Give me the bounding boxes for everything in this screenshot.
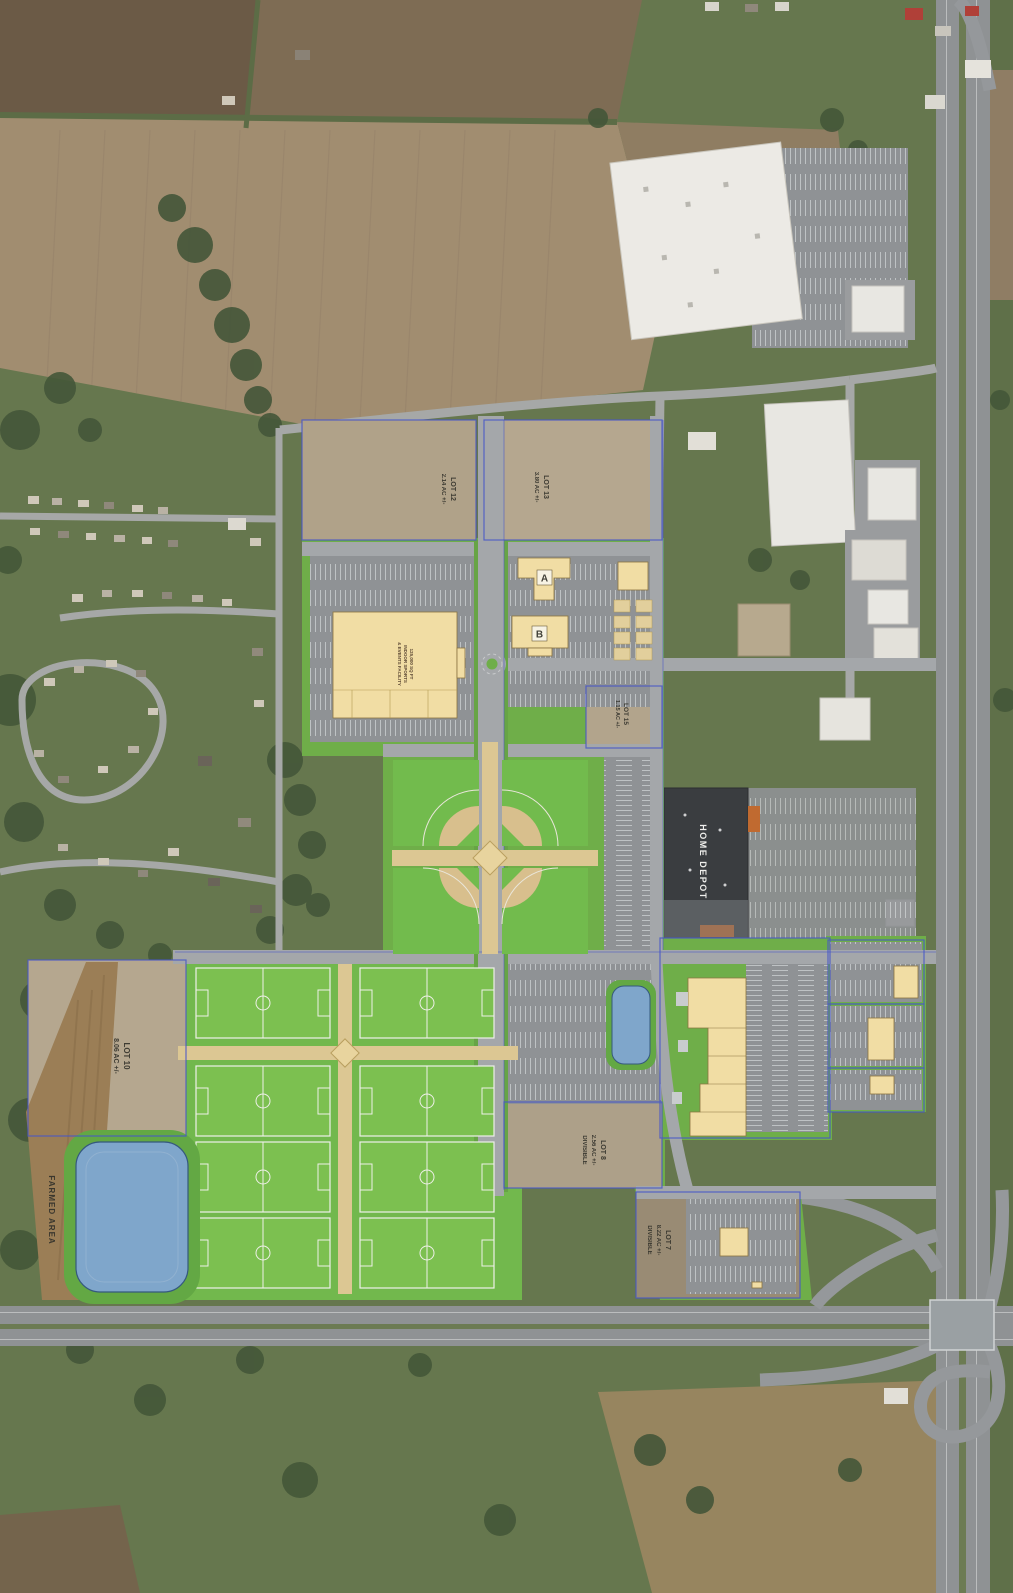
sports-facility-label-line3: & EVENTS FACILITY (397, 642, 402, 686)
home-depot-site: HOME DEPOT (664, 788, 916, 938)
outlot-building (618, 562, 648, 590)
outlot-building (894, 966, 918, 998)
lot-12-label: LOT 12 (449, 477, 456, 501)
site-plan-canvas: HOME DEPOT (0, 0, 1013, 1593)
lot-13-label: LOT 13 (542, 475, 549, 499)
lot-7-area: 8.22 AC +/- (655, 1225, 661, 1256)
sports-facility-label-line2: INDOOR SPORTS (403, 645, 408, 683)
farmed-area-label: FARMED AREA (47, 1175, 56, 1244)
big-box-store (610, 142, 802, 340)
overpass-bridge (930, 1300, 994, 1350)
lot-12-area: 2.14 AC +/- (440, 474, 446, 505)
aerial-site-plan-map[interactable]: HOME DEPOT (0, 0, 1013, 1593)
home-depot-parking (748, 788, 916, 938)
lot-8-label: LOT 8 (599, 1140, 606, 1160)
lot-15-area: 1.15 AC +/- (614, 700, 620, 728)
lot-10-label: LOT 10 (122, 1042, 131, 1070)
lot-13-parcel (484, 420, 662, 540)
small-pond (612, 986, 650, 1064)
lot-7-note: DIVISIBLE (646, 1225, 652, 1254)
lot-7-label: LOT 7 (664, 1230, 671, 1250)
warehouse-building (764, 400, 855, 546)
outlot-building (868, 1018, 894, 1060)
lot-13-area: 3.80 AC +/- (533, 472, 539, 503)
building-a-label: A (541, 574, 548, 585)
building-b-label: B (536, 630, 543, 641)
sports-facility-label-line1: 125,000 SQ FT (409, 649, 414, 680)
large-pond (76, 1142, 188, 1292)
lot-8-area: 2.56 AC +/- (590, 1135, 596, 1166)
lot-8-note: DIVISIBLE (581, 1135, 587, 1164)
commercial-building (852, 286, 904, 332)
lot-10-area: 8.06 AC +/- (112, 1038, 119, 1074)
outlot-building (870, 1076, 894, 1094)
lot-7-building (720, 1228, 748, 1256)
home-depot-label: HOME DEPOT (698, 824, 708, 900)
lot-15-label: LOT 15 (622, 703, 629, 725)
indoor-sports-facility-building (333, 612, 457, 718)
